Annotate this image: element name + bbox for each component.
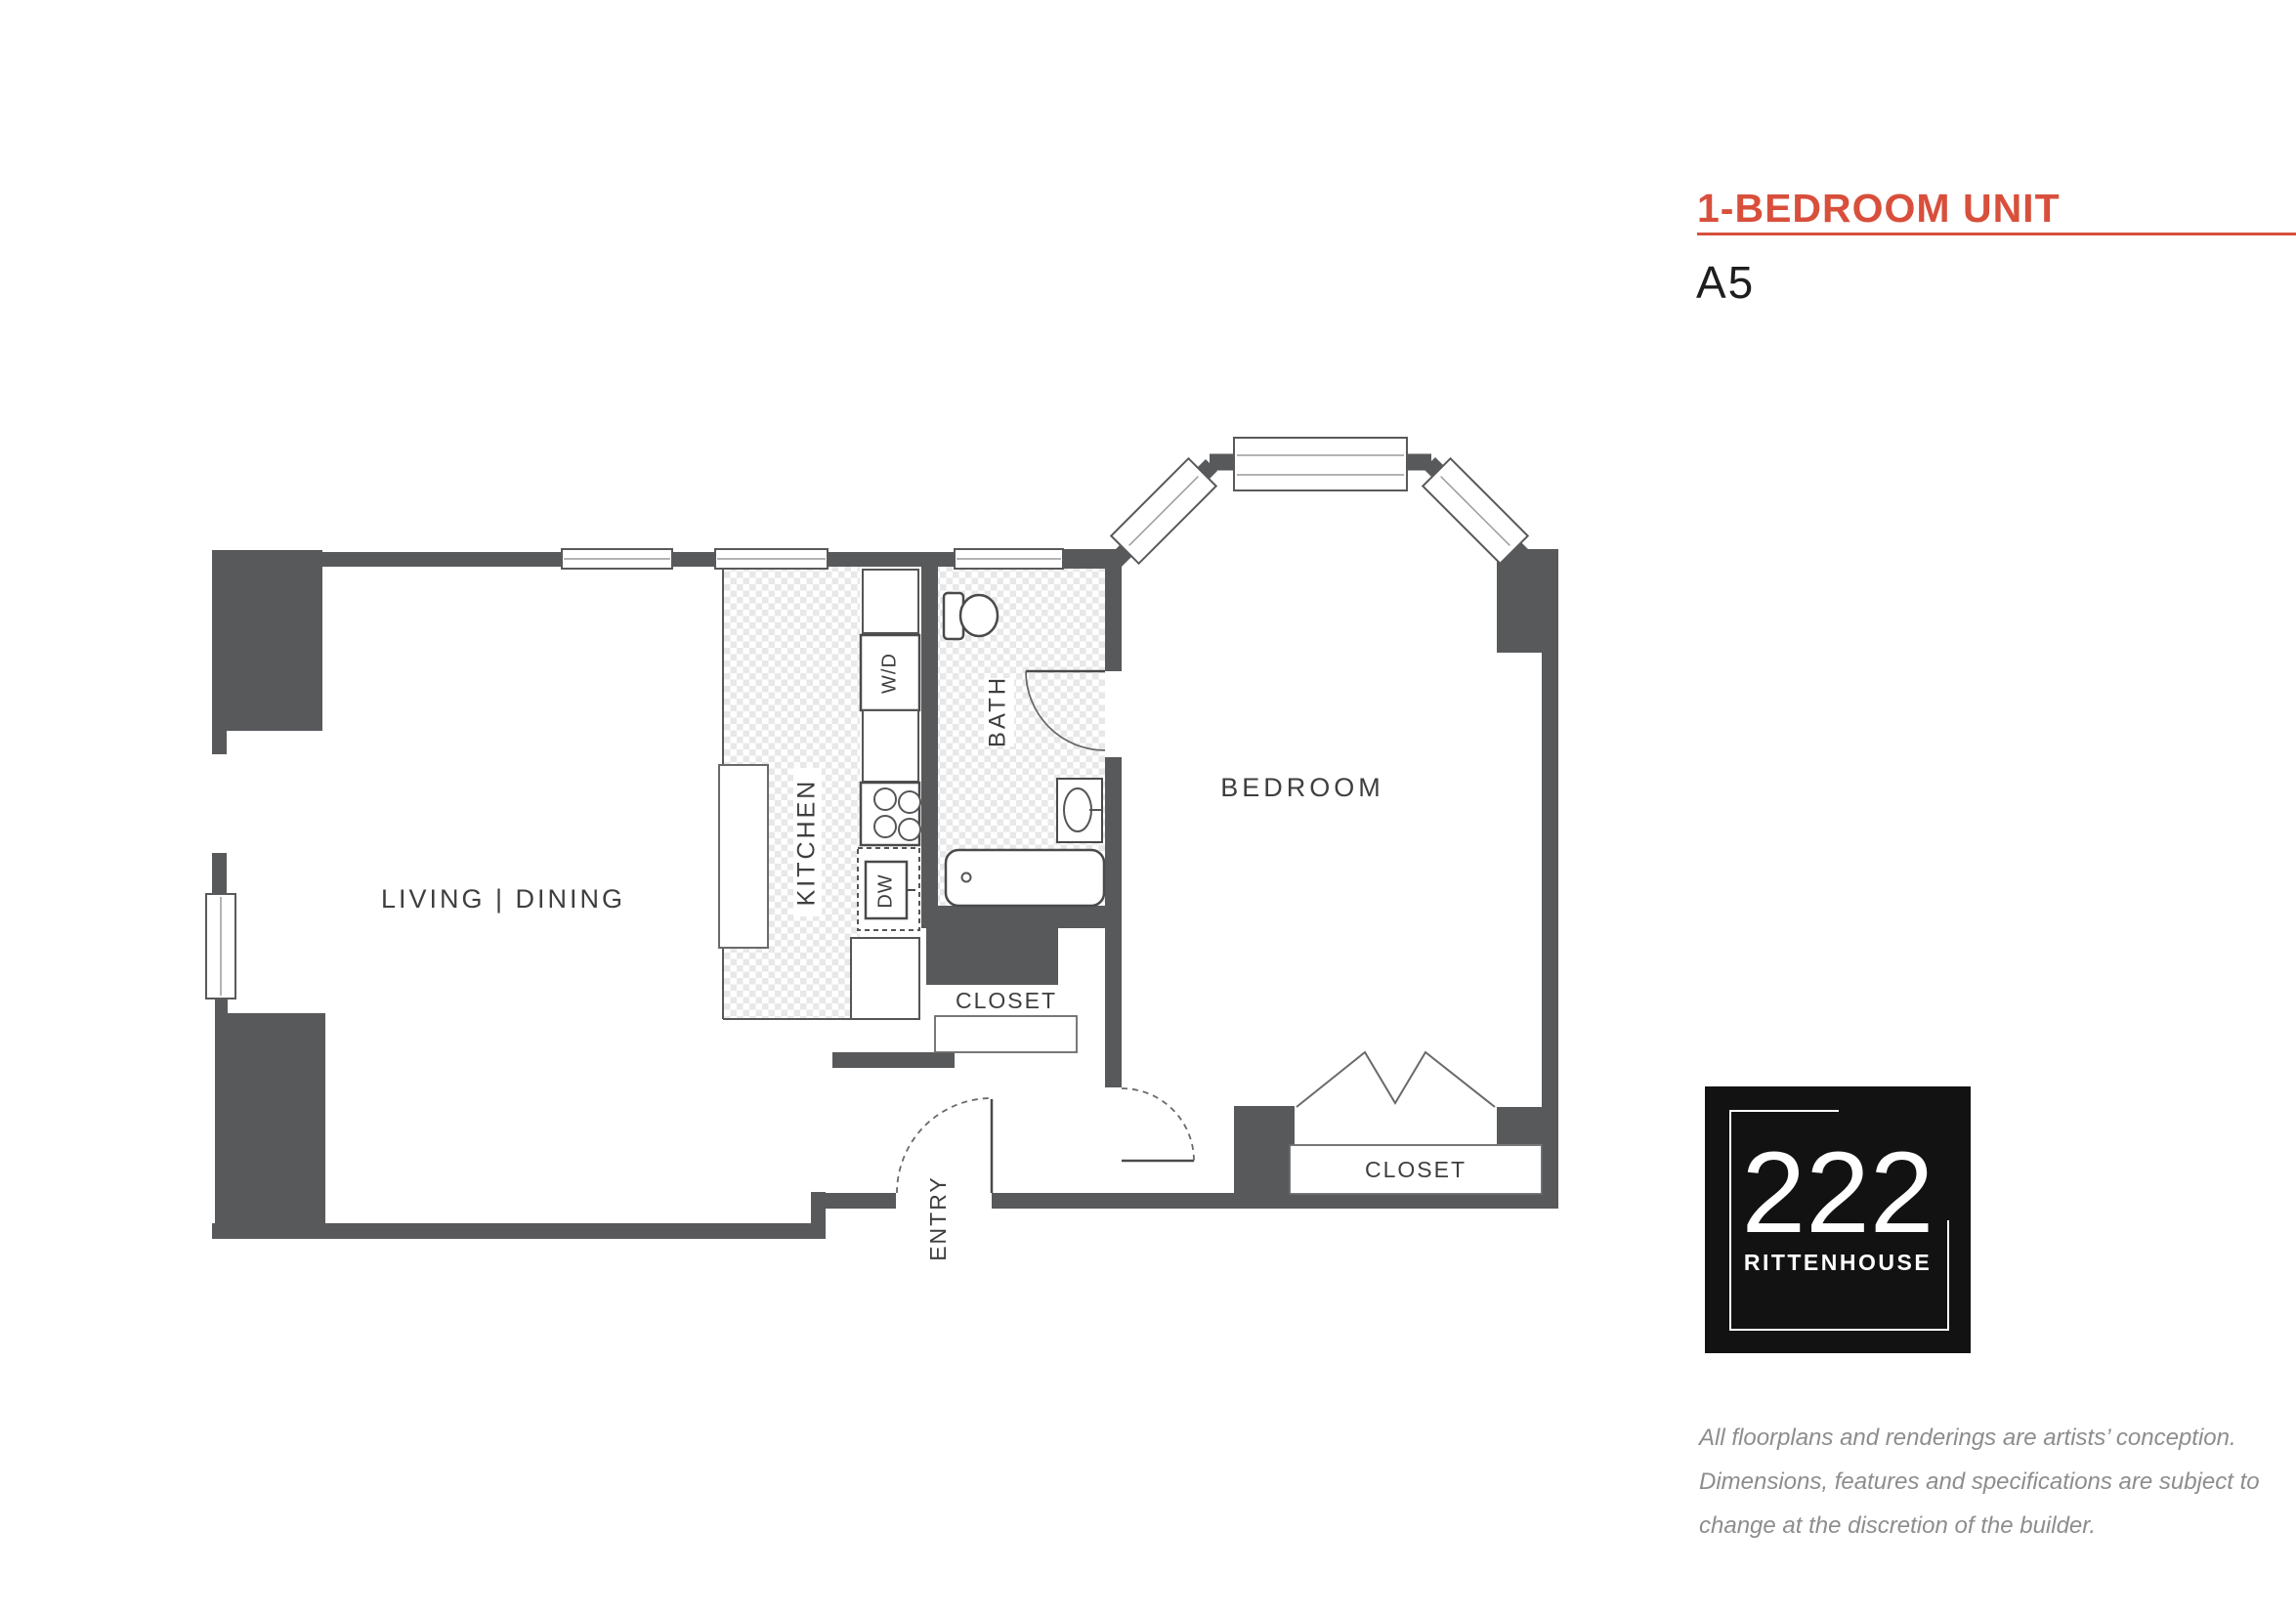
disclaimer-line: All floorplans and renderings are artist… (1699, 1416, 2266, 1460)
logo-name: RITTENHOUSE (1705, 1250, 1971, 1276)
wall-bay-column (1497, 549, 1558, 653)
title-underline (1697, 233, 2296, 235)
logo-number: 222 (1705, 1135, 1971, 1251)
wall-entry-right (992, 1193, 1234, 1209)
wall-top-left-block (212, 550, 322, 731)
wall-bedroom-right (1542, 645, 1558, 1209)
window-top-2 (715, 549, 828, 569)
wall-hall-closet-top (926, 928, 1058, 985)
wall-entry-left (826, 1193, 896, 1209)
label-bath: BATH (984, 675, 1010, 747)
wall-closet-left-block (1234, 1106, 1295, 1195)
logo-frame-top (1729, 1110, 1839, 1112)
window-bay-left (1111, 458, 1215, 563)
counter-middle (863, 710, 918, 782)
wall-top-a (322, 552, 562, 567)
label-bedroom: BEDROOM (1220, 773, 1384, 802)
wall-bath-bottom (938, 906, 1105, 928)
wall-window-post (672, 552, 715, 567)
floorplan-drawing: LIVING | DINING KITCHEN BATH BEDROOM ENT… (0, 0, 2296, 1616)
wall-bath-right-lower (1105, 757, 1122, 1087)
window-top-1 (562, 549, 672, 569)
burner-icon (899, 819, 920, 840)
kitchen-fixtures (851, 570, 920, 1019)
page-title: 1-BEDROOM UNIT (1697, 186, 2061, 232)
toilet-icon (944, 593, 998, 639)
sink-icon (1057, 779, 1102, 842)
label-hall-closet: CLOSET (956, 988, 1057, 1013)
label-dishwasher: DW (874, 873, 896, 908)
logo-frame-bottom (1729, 1329, 1949, 1331)
label-living-dining: LIVING | DINING (381, 884, 625, 914)
disclaimer-line: Dimensions, features and specifications … (1699, 1460, 2266, 1504)
wall-left-window-stub-top (212, 853, 227, 896)
wall-kitchen-bath (921, 567, 938, 928)
wall-top-b (828, 552, 955, 567)
bathtub-icon (946, 850, 1104, 906)
label-washer-dryer: W/D (878, 653, 900, 694)
kitchen-opening (719, 765, 768, 948)
bifold-doors-icon (1297, 1052, 1495, 1107)
window-left (206, 894, 235, 999)
label-bedroom-closet: CLOSET (1365, 1157, 1467, 1182)
wall-bedroom-bottom (1234, 1193, 1558, 1209)
wall-bath-right-upper (1105, 567, 1122, 671)
window-bath (955, 549, 1063, 569)
wall-jog (811, 1192, 826, 1239)
floorplan-page: LIVING | DINING KITCHEN BATH BEDROOM ENT… (0, 0, 2296, 1616)
label-entry: ENTRY (925, 1175, 951, 1261)
wall-closet-right-block (1497, 1107, 1542, 1144)
burner-icon (874, 816, 896, 837)
burner-icon (899, 791, 920, 813)
wall-bottom-left-block (215, 1013, 325, 1239)
burner-icon (874, 788, 896, 810)
disclaimer-line: change at the discretion of the builder. (1699, 1504, 2266, 1548)
unit-label: A5 (1696, 256, 1755, 309)
wall-kitchen-bottom (832, 1052, 955, 1068)
label-kitchen: KITCHEN (793, 779, 821, 907)
wall-stub (212, 731, 227, 754)
window-bay-center (1234, 438, 1407, 490)
counter-lower (851, 938, 919, 1019)
window-bay-right (1423, 458, 1527, 563)
wall-left-window-stub-bottom (215, 999, 228, 1013)
counter-upper (863, 570, 918, 633)
bedroom-door (1122, 1088, 1194, 1161)
disclaimer: All floorplans and renderings are artist… (1699, 1416, 2266, 1548)
hall-closet-outline (935, 1016, 1077, 1052)
stove (861, 783, 920, 845)
brand-logo: 222 RITTENHOUSE (1705, 1086, 1971, 1353)
